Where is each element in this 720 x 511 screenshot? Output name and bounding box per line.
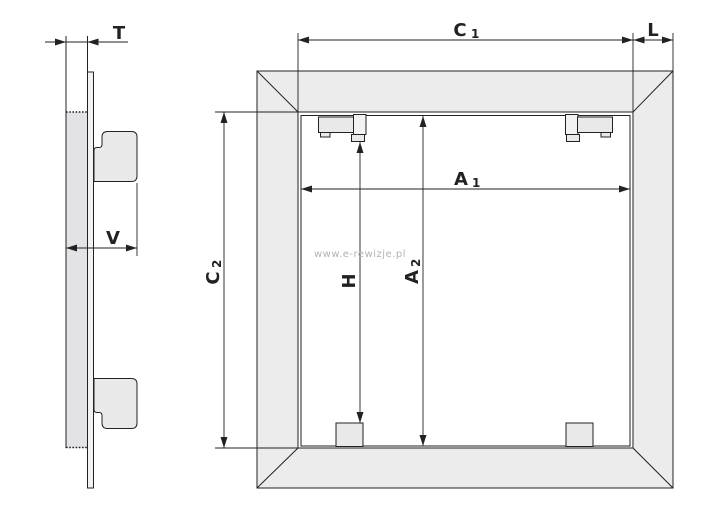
latch-body — [578, 117, 613, 133]
drawing-canvas: T V — [0, 0, 720, 511]
arrowhead-right-icon — [55, 39, 66, 46]
latch-block — [354, 115, 367, 135]
dim-label-l: L — [647, 20, 658, 41]
dim-t: T — [45, 23, 128, 46]
side-view: T V — [45, 23, 137, 488]
latch-block — [566, 115, 579, 135]
latch-foot — [352, 135, 365, 142]
latch-body — [319, 117, 354, 133]
dim-label-t: T — [113, 23, 126, 44]
dim-label-a1-sub: 1 — [472, 176, 480, 190]
dim-label-a2: A — [402, 270, 423, 284]
latch-foot — [601, 133, 611, 138]
dim-label-a2-sub: 2 — [409, 259, 423, 267]
dim-label-a1: A — [454, 169, 468, 190]
panel-section — [66, 112, 88, 448]
latch-bracket-top — [94, 132, 137, 182]
dim-label-c2: C — [203, 271, 224, 284]
technical-drawing: T V — [0, 0, 720, 511]
dim-label-c1-sub: 1 — [471, 27, 479, 41]
latch-bracket-bottom — [94, 379, 137, 429]
watermark-text: www.e-rewizje.pl — [314, 249, 406, 260]
front-view: C 1 L C 2 A 1 — [203, 20, 673, 488]
dim-label-h: H — [339, 273, 360, 288]
dim-l: L — [633, 20, 673, 71]
arrowhead-right-icon — [662, 37, 673, 44]
latch-foot — [321, 133, 331, 138]
arrowhead-right-icon — [126, 245, 137, 252]
dim-label-c2-sub: 2 — [210, 260, 224, 268]
dim-label-v: V — [106, 228, 120, 249]
dim-label-c1: C — [453, 20, 466, 41]
latch-foot — [567, 135, 580, 142]
arrowhead-left-icon — [88, 39, 99, 46]
bottom-bracket-right — [566, 423, 593, 447]
arrowhead-left-icon — [634, 37, 645, 44]
arrowhead-left-icon — [298, 37, 309, 44]
arrowhead-down-icon — [221, 437, 228, 448]
bottom-bracket-left — [336, 423, 363, 447]
arrowhead-up-icon — [221, 112, 228, 123]
arrowhead-right-icon — [622, 37, 633, 44]
frame-plate — [88, 72, 94, 488]
